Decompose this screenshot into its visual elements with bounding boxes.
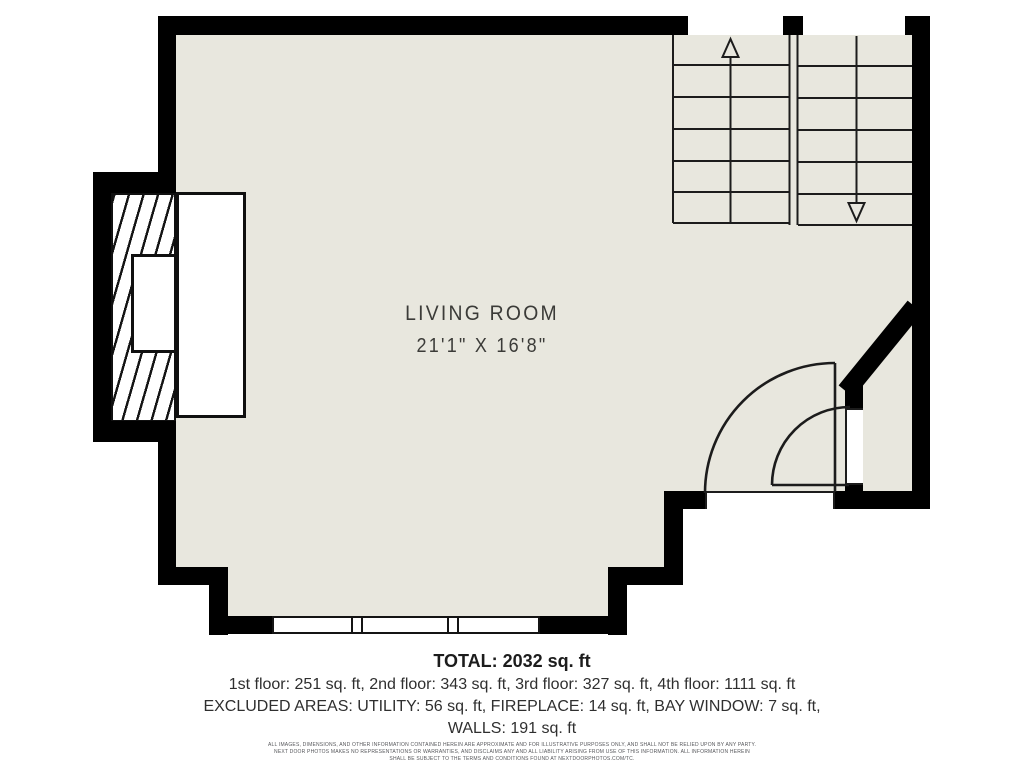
- wall-bottom-right-b: [835, 491, 930, 509]
- wall-top-left-segment: [158, 16, 688, 35]
- window-frame-end-right: [538, 618, 540, 632]
- stair-opening-right: [803, 16, 905, 35]
- window-mullion: [447, 618, 449, 632]
- wall-left-upper: [158, 16, 176, 176]
- wall-left-lower: [158, 442, 176, 585]
- room-name-label: LIVING ROOM: [329, 301, 635, 326]
- window-frame-end-left: [272, 618, 274, 632]
- disclaimer-line: NEXT DOOR PHOTOS MAKES NO REPRESENTATION…: [0, 749, 1024, 756]
- window-mullion: [457, 618, 459, 632]
- disclaimer-line: ALL IMAGES, DIMENSIONS, AND OTHER INFORM…: [0, 742, 1024, 749]
- fireplace-hearth: [176, 192, 246, 418]
- room-dimensions-label: 21'1" X 16'8": [329, 335, 635, 358]
- entry-door-opening: [705, 491, 835, 509]
- wall-bottom-left-b: [540, 616, 627, 634]
- stair-opening-left: [688, 16, 783, 35]
- wall-top-post: [783, 16, 803, 35]
- wall-bay-left: [93, 172, 111, 442]
- bay-window: [272, 616, 540, 634]
- walls-area-text: WALLS: 191 sq. ft: [0, 720, 1024, 738]
- total-area-text: TOTAL: 2032 sq. ft: [0, 651, 1024, 672]
- window-mullion: [361, 618, 363, 632]
- vestibule-door-opening: [845, 408, 863, 485]
- wall-right: [912, 16, 930, 509]
- disclaimer-text: ALL IMAGES, DIMENSIONS, AND OTHER INFORM…: [0, 742, 1024, 763]
- window-mullion: [351, 618, 353, 632]
- excluded-areas-text: EXCLUDED AREAS: UTILITY: 56 sq. ft, FIRE…: [0, 698, 1024, 716]
- disclaimer-line: SHALL BE SUBJECT TO THE TERMS AND CONDIT…: [0, 756, 1024, 763]
- fireplace-firebox: [131, 254, 177, 353]
- wall-bay-bottom: [93, 421, 176, 442]
- floor-areas-text: 1st floor: 251 sq. ft, 2nd floor: 343 sq…: [0, 676, 1024, 694]
- floor-plan-page: LIVING ROOM 21'1" X 16'8" TOTAL: 2032 sq…: [0, 0, 1024, 768]
